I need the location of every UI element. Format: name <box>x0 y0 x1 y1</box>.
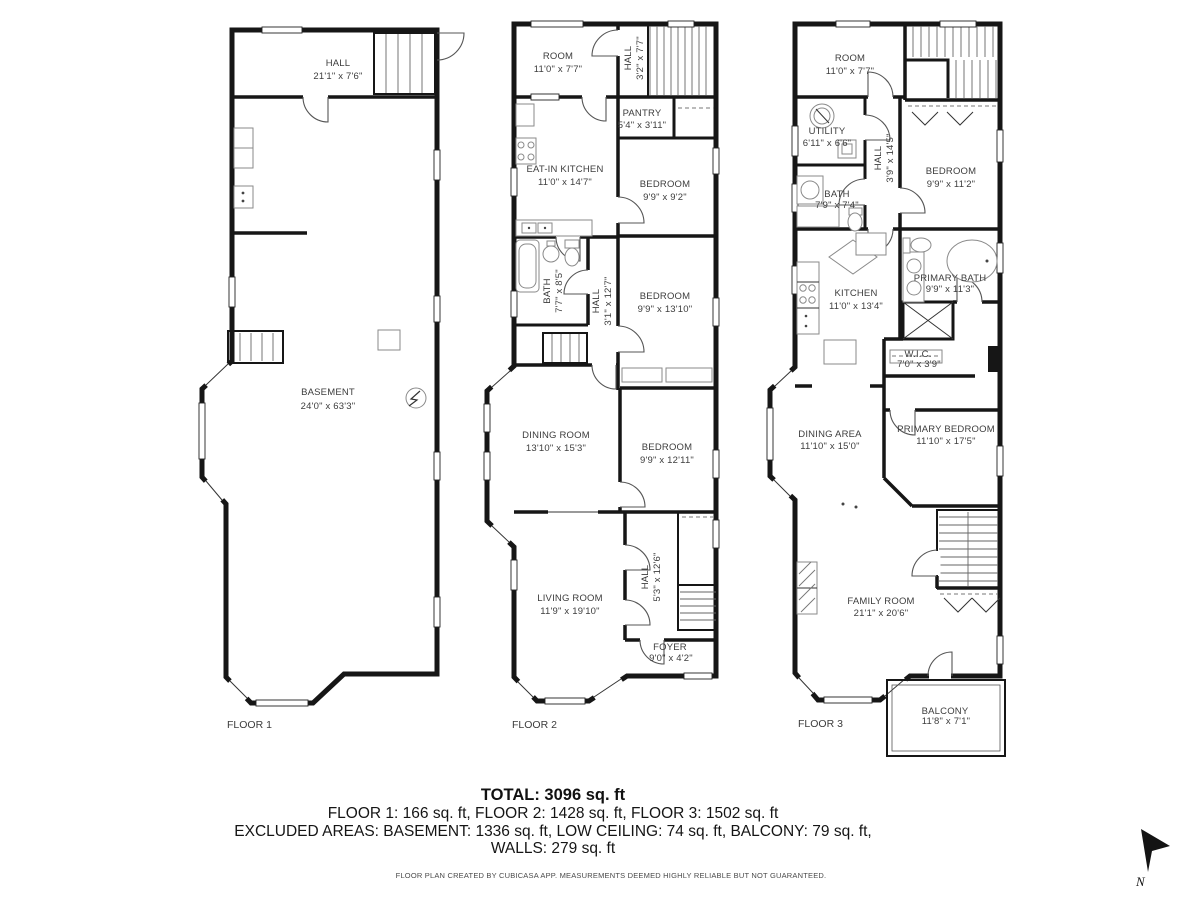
room-dims-wic: 7'0" x 3'9" <box>897 359 941 370</box>
room-label-bedroom3-f2: BEDROOM <box>642 442 693 453</box>
room-dims-balcony: 11'8" x 7'1" <box>922 716 971 727</box>
room-dims-basement: 24'0" x 63'3" <box>301 401 356 412</box>
room-dims-primary-bath: 9'9" x 11'3" <box>926 284 975 295</box>
room-dims-hall-low-f2: 5'3" x 12'6" <box>652 552 663 601</box>
room-dims-bedroom-f3: 9'9" x 11'2" <box>927 179 976 190</box>
floor-3-closet-icon <box>890 106 996 363</box>
room-dims-hall-f3: 3'9" x 14'5" <box>885 133 896 182</box>
floor-3-label: FLOOR 3 <box>798 718 843 730</box>
room-label-hall-mid-f2: HALL <box>591 289 602 314</box>
room-label-dining-area: DINING AREA <box>798 429 862 440</box>
excluded-areas: EXCLUDED AREAS: BASEMENT: 1336 sq. ft, L… <box>0 823 1106 841</box>
floor-2-label: FLOOR 2 <box>512 719 557 731</box>
room-label-bedroom2-f2: BEDROOM <box>640 291 691 302</box>
walls-area: WALLS: 279 sq. ft <box>0 840 1106 858</box>
room-label-family-room: FAMILY ROOM <box>847 596 914 607</box>
room-dims-kitchen-f3: 11'0" x 13'4" <box>829 301 883 312</box>
floor-2-fixtures-icon <box>516 104 592 292</box>
room-label-utility: UTILITY <box>809 126 846 137</box>
room-dims-bedroom2-f2: 9'9" x 13'10" <box>638 304 693 315</box>
room-dims-room-f3: 11'0" x 7'7" <box>826 66 875 77</box>
room-dims-dining-room: 13'10" x 15'3" <box>526 443 586 454</box>
room-dims-bedroom1-f2: 9'9" x 9'2" <box>643 192 687 203</box>
floor-1-stairs-icon <box>228 33 435 363</box>
room-label-bedroom-f3: BEDROOM <box>926 166 977 177</box>
room-label-bedroom1-f2: BEDROOM <box>640 179 691 190</box>
floor-3-plan: ROOM 11'0" x 7'7" UTILITY 6'11" x 6'6" H… <box>767 21 1005 756</box>
room-dims-family-room: 21'1" x 20'6" <box>854 608 909 619</box>
room-dims-eat-in-kitchen: 11'0" x 14'7" <box>538 177 592 188</box>
room-dims-foyer: 9'0" x 4'2" <box>649 653 693 664</box>
floor-1-fixtures-icon <box>234 128 426 408</box>
floor-1-label: FLOOR 1 <box>227 719 272 731</box>
room-label-pantry: PANTRY <box>623 108 662 119</box>
room-label-bath-f2: BATH <box>542 278 553 303</box>
room-label-living-room: LIVING ROOM <box>537 593 603 604</box>
room-label-foyer: FOYER <box>653 642 687 653</box>
floor-2-plan: ROOM 11'0" x 7'7" HALL 3'2" x 7'7" PANTR… <box>484 21 719 731</box>
floor-plan-drawing: HALL 21'1" x 7'6" BASEMENT 24'0" x 63'3"… <box>0 0 1200 900</box>
total-area: TOTAL: 3096 sq. ft <box>0 785 1106 805</box>
room-label-hall-top-f2: HALL <box>623 46 634 71</box>
room-dims-hall-f1: 21'1" x 7'6" <box>313 71 362 82</box>
room-dims-primary-bedroom: 11'10" x 17'5" <box>916 436 975 447</box>
room-dims-utility: 6'11" x 6'6" <box>803 138 852 149</box>
room-dims-hall-mid-f2: 3'1" x 12'7" <box>603 276 614 325</box>
room-label-dining-room: DINING ROOM <box>522 430 590 441</box>
room-dims-bath-f2: 7'7" x 8'5" <box>554 269 565 313</box>
room-label-hall-f1: HALL <box>326 58 351 69</box>
room-dims-room-f2: 11'0" x 7'7" <box>534 64 583 75</box>
room-dims-living-room: 11'9" x 19'10" <box>540 606 599 617</box>
room-label-kitchen-f3: KITCHEN <box>834 288 877 299</box>
room-label-basement: BASEMENT <box>301 387 355 398</box>
room-label-primary-bedroom: PRIMARY BEDROOM <box>897 424 995 435</box>
room-label-hall-low-f2: HALL <box>640 565 651 590</box>
floor-3-shower-icon <box>903 302 953 339</box>
floor-3-doors-icon <box>839 72 982 676</box>
room-dims-dining-area: 11'10" x 15'0" <box>800 441 859 452</box>
room-label-eat-in-kitchen: EAT-IN KITCHEN <box>526 164 603 175</box>
room-label-bath-f3: BATH <box>824 189 849 200</box>
north-compass: N <box>1135 829 1170 889</box>
room-label-primary-bath: PRIMARY BATH <box>914 273 987 284</box>
room-label-room-f2: ROOM <box>543 51 573 62</box>
north-arrow-icon <box>1141 829 1170 872</box>
room-dims-hall-top-f2: 3'2" x 7'7" <box>635 36 646 80</box>
room-label-room-f3: ROOM <box>835 53 865 64</box>
area-summary: TOTAL: 3096 sq. ft FLOOR 1: 166 sq. ft, … <box>0 785 1106 858</box>
room-dims-bath-f3: 7'9" x 7'4" <box>815 200 859 211</box>
disclaimer-text: FLOOR PLAN CREATED BY CUBICASA APP. MEAS… <box>22 871 1200 880</box>
room-dims-bedroom3-f2: 9'9" x 12'11" <box>640 455 694 466</box>
floor-plan-sheet: HALL 21'1" x 7'6" BASEMENT 24'0" x 63'3"… <box>0 0 1200 900</box>
room-label-hall-f3: HALL <box>873 146 884 171</box>
floor-1-plan: HALL 21'1" x 7'6" BASEMENT 24'0" x 63'3"… <box>199 27 464 731</box>
floor-areas: FLOOR 1: 166 sq. ft, FLOOR 2: 1428 sq. f… <box>0 805 1106 823</box>
room-dims-pantry: 5'4" x 3'11" <box>618 120 667 131</box>
